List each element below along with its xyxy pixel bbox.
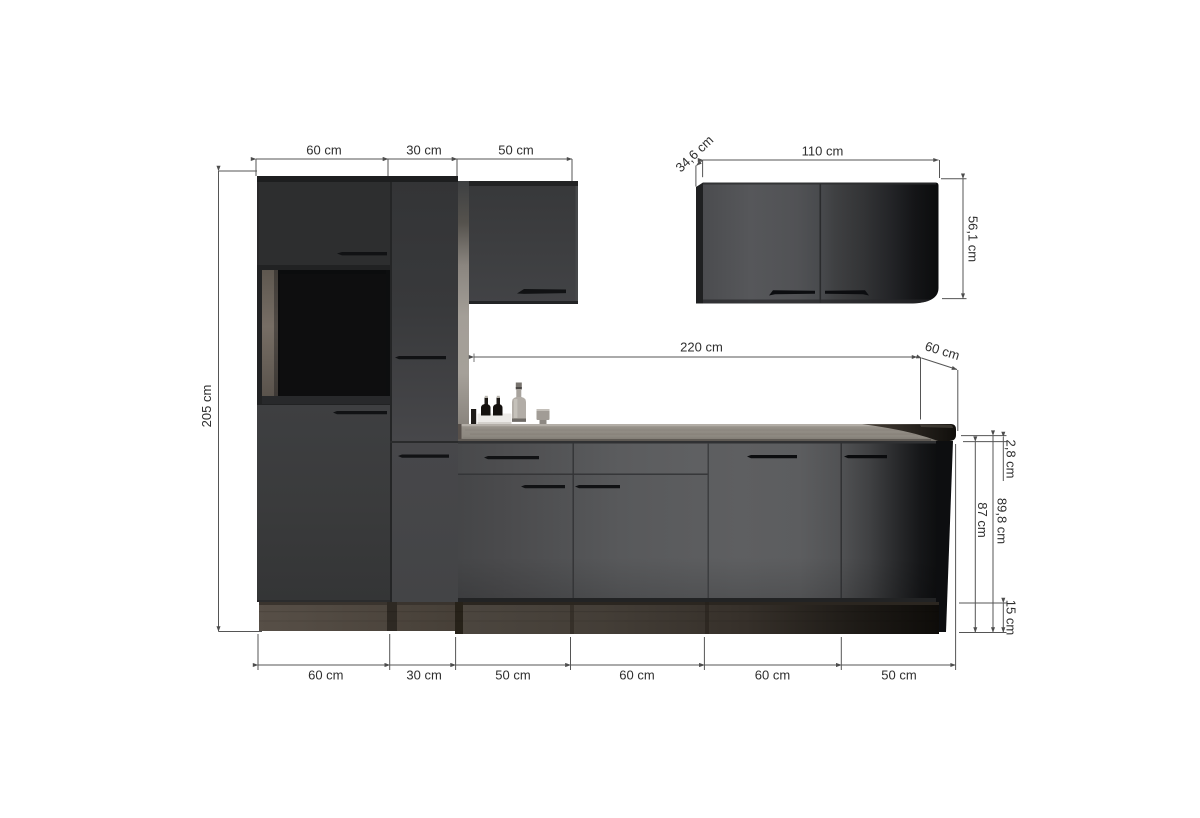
svg-text:50 cm: 50 cm	[881, 668, 916, 683]
svg-text:205 cm: 205 cm	[199, 385, 214, 428]
svg-text:89,8 cm: 89,8 cm	[995, 498, 1010, 544]
svg-text:60 cm: 60 cm	[308, 668, 343, 683]
svg-text:220 cm: 220 cm	[680, 340, 723, 355]
svg-text:50 cm: 50 cm	[495, 668, 530, 683]
svg-text:2,8 cm: 2,8 cm	[1004, 439, 1019, 478]
svg-text:50 cm: 50 cm	[498, 143, 533, 158]
svg-text:30 cm: 30 cm	[406, 143, 441, 158]
svg-text:60 cm: 60 cm	[619, 668, 654, 683]
svg-text:110 cm: 110 cm	[802, 144, 844, 159]
svg-text:30 cm: 30 cm	[406, 668, 441, 683]
svg-text:60 cm: 60 cm	[755, 668, 790, 683]
svg-text:56,1 cm: 56,1 cm	[966, 216, 981, 262]
svg-text:87 cm: 87 cm	[975, 502, 990, 537]
svg-text:15 cm: 15 cm	[1004, 600, 1019, 635]
svg-text:60 cm: 60 cm	[306, 143, 341, 158]
